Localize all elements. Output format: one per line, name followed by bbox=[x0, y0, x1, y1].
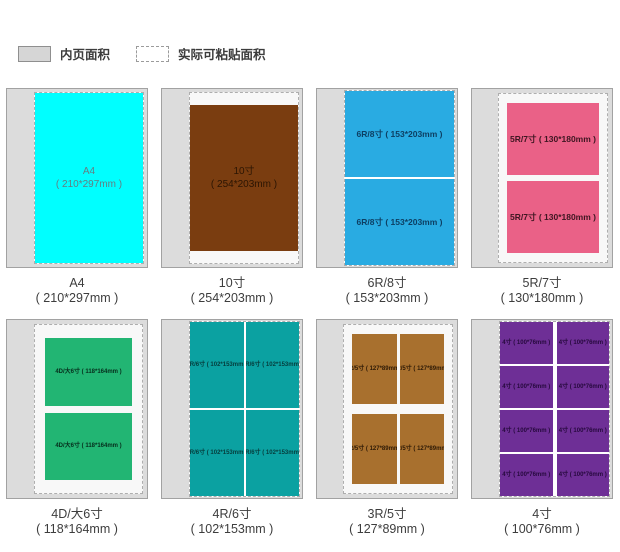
photo-4inch: 4寸 ( 100*76mm ) bbox=[500, 410, 553, 452]
photo-label: 4R/6寸 ( 102*153mm ) bbox=[190, 361, 244, 369]
photo-4inch: 4寸 ( 100*76mm ) bbox=[557, 322, 610, 364]
caption-size: ( 118*164mm ) bbox=[6, 522, 148, 537]
photo-4inch: 4寸 ( 100*76mm ) bbox=[557, 366, 610, 408]
album-page-4d: 4D/大6寸 ( 118*164mm ) 4D/大6寸 ( 118*164mm … bbox=[6, 319, 148, 499]
photo-6r8inch: 6R/8寸 ( 153*203mm ) bbox=[345, 91, 454, 177]
paste-area-label: 实际可粘贴面积 bbox=[178, 44, 266, 63]
legend: 内页面积 实际可粘贴面积 bbox=[18, 44, 266, 63]
photo-a4: A4 ( 210*297mm ) bbox=[35, 93, 143, 263]
panel-10inch: 10寸 ( 254*203mm ) 10寸 ( 254*203mm ) bbox=[161, 88, 303, 306]
caption-size: ( 102*153mm ) bbox=[161, 522, 303, 537]
panel-caption-a4: A4 ( 210*297mm ) bbox=[6, 275, 148, 306]
photo-label-line2: ( 254*203mm ) bbox=[211, 178, 277, 191]
album-page-a4: A4 ( 210*297mm ) bbox=[6, 88, 148, 268]
caption-title: 5R/7寸 bbox=[471, 275, 613, 291]
photo-label: 4D/大6寸 ( 118*164mm ) bbox=[55, 368, 121, 376]
photo-label: 5R/7寸 ( 130*180mm ) bbox=[510, 212, 596, 223]
size-diagram-board: A4 ( 210*297mm ) A4 ( 210*297mm ) 10寸 ( … bbox=[6, 88, 613, 537]
inner-page-area-swatch bbox=[18, 46, 51, 62]
panel-4inch: 4寸 ( 100*76mm ) 4寸 ( 100*76mm ) 4寸 ( 100… bbox=[471, 319, 613, 537]
photo-4inch: 4寸 ( 100*76mm ) bbox=[500, 366, 553, 408]
photo-4inch: 4寸 ( 100*76mm ) bbox=[500, 322, 553, 364]
photo-label: 4D/大6寸 ( 118*164mm ) bbox=[55, 442, 121, 450]
photo-5r7inch: 5R/7寸 ( 130*180mm ) bbox=[507, 103, 599, 175]
panel-4d-big6inch: 4D/大6寸 ( 118*164mm ) 4D/大6寸 ( 118*164mm … bbox=[6, 319, 148, 537]
photo-4inch: 4寸 ( 100*76mm ) bbox=[557, 454, 610, 496]
photo-4inch: 4寸 ( 100*76mm ) bbox=[557, 410, 610, 452]
inner-page-area-label: 内页面积 bbox=[60, 44, 110, 63]
caption-size: ( 130*180mm ) bbox=[471, 291, 613, 306]
photo-4inch: 4寸 ( 100*76mm ) bbox=[500, 454, 553, 496]
photo-label: 3R/5寸 ( 127*89mm ) bbox=[352, 445, 397, 453]
photo-3r5inch: 3R/5寸 ( 127*89mm ) bbox=[400, 414, 445, 484]
panel-caption-4d: 4D/大6寸 ( 118*164mm ) bbox=[6, 506, 148, 537]
photo-label: 6R/8寸 ( 153*203mm ) bbox=[357, 129, 443, 140]
panel-caption-3r5inch: 3R/5寸 ( 127*89mm ) bbox=[316, 506, 458, 537]
caption-size: ( 127*89mm ) bbox=[316, 522, 458, 537]
paste-area-4inch: 4寸 ( 100*76mm ) 4寸 ( 100*76mm ) 4寸 ( 100… bbox=[499, 321, 610, 497]
caption-title: 4R/6寸 bbox=[161, 506, 303, 522]
panel-caption-5r7inch: 5R/7寸 ( 130*180mm ) bbox=[471, 275, 613, 306]
caption-title: 10寸 bbox=[161, 275, 303, 291]
paste-area-6r8inch: 6R/8寸 ( 153*203mm ) 6R/8寸 ( 153*203mm ) bbox=[344, 90, 455, 266]
photo-label: 5R/7寸 ( 130*180mm ) bbox=[510, 134, 596, 145]
photo-4r6inch: 4R/6寸 ( 102*153mm ) bbox=[190, 410, 244, 496]
panel-caption-4r6inch: 4R/6寸 ( 102*153mm ) bbox=[161, 506, 303, 537]
caption-title: A4 bbox=[6, 275, 148, 291]
photo-4d: 4D/大6寸 ( 118*164mm ) bbox=[45, 338, 132, 406]
paste-area-a4: A4 ( 210*297mm ) bbox=[34, 92, 144, 264]
album-page-4r6inch: 4R/6寸 ( 102*153mm ) 4R/6寸 ( 102*153mm ) … bbox=[161, 319, 303, 499]
caption-title: 4寸 bbox=[471, 506, 613, 522]
album-page-10inch: 10寸 ( 254*203mm ) bbox=[161, 88, 303, 268]
album-page-3r5inch: 3R/5寸 ( 127*89mm ) 3R/5寸 ( 127*89mm ) 3R… bbox=[316, 319, 458, 499]
caption-size: ( 254*203mm ) bbox=[161, 291, 303, 306]
photo-3r5inch: 3R/5寸 ( 127*89mm ) bbox=[352, 334, 397, 404]
photo-label: 6R/8寸 ( 153*203mm ) bbox=[357, 217, 443, 228]
photo-label: 4寸 ( 100*76mm ) bbox=[559, 427, 607, 435]
panel-4r6inch: 4R/6寸 ( 102*153mm ) 4R/6寸 ( 102*153mm ) … bbox=[161, 319, 303, 537]
photo-label: 4寸 ( 100*76mm ) bbox=[502, 383, 550, 391]
photo-label: 4R/6寸 ( 102*153mm ) bbox=[246, 361, 300, 369]
panel-caption-4inch: 4寸 ( 100*76mm ) bbox=[471, 506, 613, 537]
photo-4r6inch: 4R/6寸 ( 102*153mm ) bbox=[246, 410, 300, 496]
photo-3r5inch: 3R/5寸 ( 127*89mm ) bbox=[352, 414, 397, 484]
photo-label: 3R/5寸 ( 127*89mm ) bbox=[400, 445, 445, 453]
album-page-4inch: 4寸 ( 100*76mm ) 4寸 ( 100*76mm ) 4寸 ( 100… bbox=[471, 319, 613, 499]
panel-caption-10inch: 10寸 ( 254*203mm ) bbox=[161, 275, 303, 306]
album-page-5r7inch: 5R/7寸 ( 130*180mm ) 5R/7寸 ( 130*180mm ) bbox=[471, 88, 613, 268]
photo-label: 4寸 ( 100*76mm ) bbox=[559, 339, 607, 347]
album-page-6r8inch: 6R/8寸 ( 153*203mm ) 6R/8寸 ( 153*203mm ) bbox=[316, 88, 458, 268]
panel-a4: A4 ( 210*297mm ) A4 ( 210*297mm ) bbox=[6, 88, 148, 306]
caption-title: 6R/8寸 bbox=[316, 275, 458, 291]
photo-label-line1: 10寸 bbox=[233, 165, 254, 178]
caption-title: 4D/大6寸 bbox=[6, 506, 148, 522]
caption-size: ( 100*76mm ) bbox=[471, 522, 613, 537]
paste-area-swatch bbox=[136, 46, 169, 62]
photo-label: 4R/6寸 ( 102*153mm ) bbox=[190, 449, 244, 457]
photo-label: 3R/5寸 ( 127*89mm ) bbox=[400, 365, 445, 373]
caption-title: 3R/5寸 bbox=[316, 506, 458, 522]
photo-label: 4R/6寸 ( 102*153mm ) bbox=[246, 449, 300, 457]
photo-label: 4寸 ( 100*76mm ) bbox=[502, 471, 550, 479]
photo-label-line2: ( 210*297mm ) bbox=[56, 178, 122, 191]
photo-label: 4寸 ( 100*76mm ) bbox=[502, 339, 550, 347]
photo-3r5inch: 3R/5寸 ( 127*89mm ) bbox=[400, 334, 445, 404]
photo-label: 4寸 ( 100*76mm ) bbox=[559, 383, 607, 391]
photo-label: 3R/5寸 ( 127*89mm ) bbox=[352, 365, 397, 373]
panel-6r8inch: 6R/8寸 ( 153*203mm ) 6R/8寸 ( 153*203mm ) … bbox=[316, 88, 458, 306]
photo-5r7inch: 5R/7寸 ( 130*180mm ) bbox=[507, 181, 599, 253]
photo-10inch: 10寸 ( 254*203mm ) bbox=[190, 105, 298, 251]
paste-area-5r7inch: 5R/7寸 ( 130*180mm ) 5R/7寸 ( 130*180mm ) bbox=[498, 93, 608, 263]
caption-size: ( 210*297mm ) bbox=[6, 291, 148, 306]
photo-4r6inch: 4R/6寸 ( 102*153mm ) bbox=[246, 322, 300, 408]
photo-label-line1: A4 bbox=[83, 165, 95, 178]
photo-label: 4寸 ( 100*76mm ) bbox=[559, 471, 607, 479]
paste-area-4d: 4D/大6寸 ( 118*164mm ) 4D/大6寸 ( 118*164mm … bbox=[34, 324, 143, 494]
photo-4r6inch: 4R/6寸 ( 102*153mm ) bbox=[190, 322, 244, 408]
photo-label: 4寸 ( 100*76mm ) bbox=[502, 427, 550, 435]
panel-caption-6r8inch: 6R/8寸 ( 153*203mm ) bbox=[316, 275, 458, 306]
paste-area-10inch: 10寸 ( 254*203mm ) bbox=[189, 92, 299, 264]
caption-size: ( 153*203mm ) bbox=[316, 291, 458, 306]
photo-6r8inch: 6R/8寸 ( 153*203mm ) bbox=[345, 179, 454, 265]
paste-area-4r6inch: 4R/6寸 ( 102*153mm ) 4R/6寸 ( 102*153mm ) … bbox=[189, 321, 300, 497]
paste-area-3r5inch: 3R/5寸 ( 127*89mm ) 3R/5寸 ( 127*89mm ) 3R… bbox=[343, 324, 453, 494]
panel-3r5inch: 3R/5寸 ( 127*89mm ) 3R/5寸 ( 127*89mm ) 3R… bbox=[316, 319, 458, 537]
panel-5r7inch: 5R/7寸 ( 130*180mm ) 5R/7寸 ( 130*180mm ) … bbox=[471, 88, 613, 306]
photo-4d: 4D/大6寸 ( 118*164mm ) bbox=[45, 413, 132, 481]
